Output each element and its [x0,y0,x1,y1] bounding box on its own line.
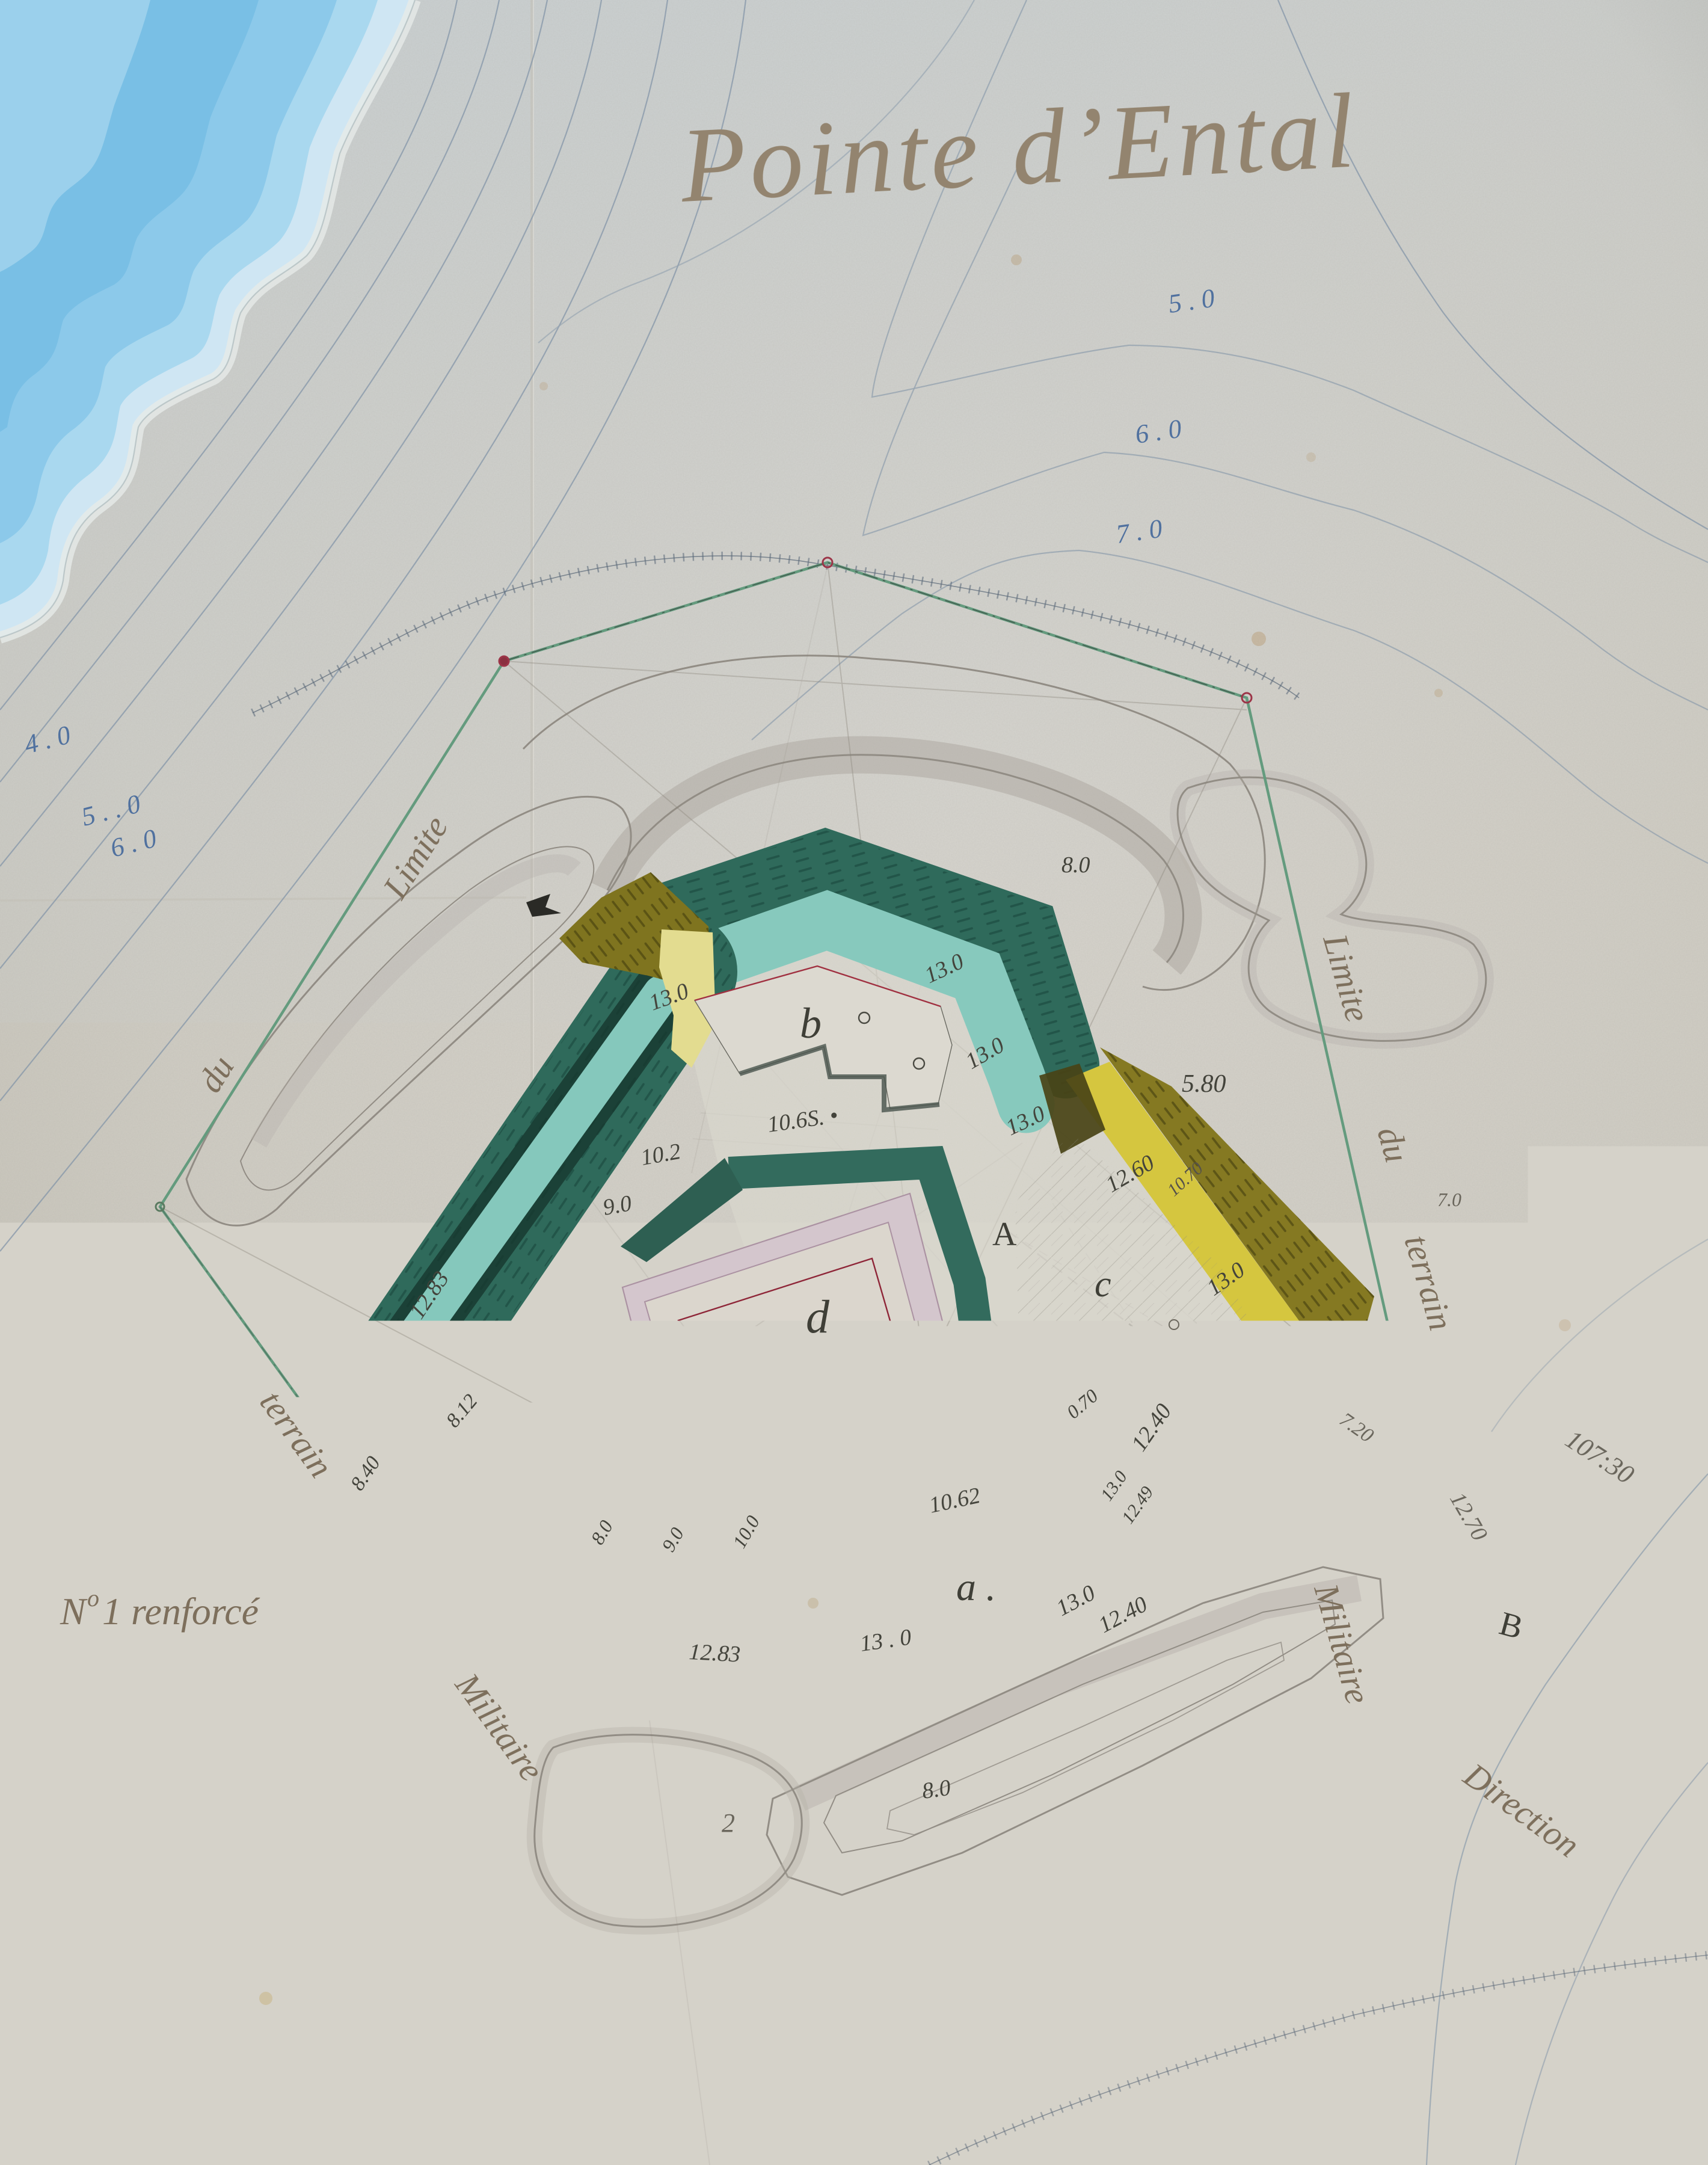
svg-text:d: d [806,1290,830,1343]
svg-text:c: c [1095,1264,1111,1305]
svg-text:N: N [60,1590,88,1633]
svg-text:9.0: 9.0 [601,1190,633,1221]
svg-text:a .: a . [956,1565,996,1609]
svg-text:7.0: 7.0 [1437,1189,1461,1210]
svg-text:2: 2 [722,1808,735,1838]
svg-text:8.0: 8.0 [1061,852,1090,878]
svg-text:8.0: 8.0 [920,1775,952,1804]
svg-text:A: A [992,1216,1017,1253]
svg-text:1 renforcé: 1 renforcé [102,1590,260,1633]
svg-text:o: o [87,1584,99,1612]
svg-text:5.80: 5.80 [1182,1070,1226,1098]
svg-text:b: b [800,999,822,1047]
svg-text:12.83: 12.83 [689,1639,742,1667]
